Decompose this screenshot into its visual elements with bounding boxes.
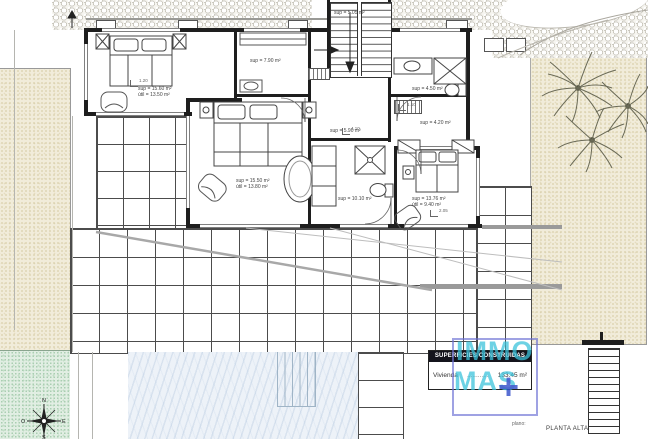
hall-arrow-icon: [314, 47, 338, 54]
dimension-label: 4.10: [351, 126, 360, 131]
armchair-master: [196, 171, 229, 204]
shower-bathroom-2: [434, 58, 466, 84]
logo-text-immo: IMMO: [456, 336, 534, 367]
dimension-label: 1.20: [139, 78, 148, 83]
dimension-tick: [342, 128, 350, 135]
room-label-dressing: sup = 7.90 m²: [250, 58, 281, 64]
useful-area-text: útil = 13.50 m²: [138, 92, 172, 98]
dimension-tick: [430, 210, 438, 217]
entry-arrow-icon: [68, 11, 76, 28]
dimension-tick: [130, 80, 138, 87]
toilet-master: [370, 184, 393, 198]
room-label-bathroom-2: sup = 4.50 m²: [412, 86, 443, 92]
room-label-master-bathroom: sup = 10.10 m²: [338, 196, 372, 202]
compass-east-label: E: [62, 419, 66, 425]
logo-plus-icon: +: [498, 366, 519, 408]
shower-master: [355, 146, 385, 174]
compass-icon: N E S O: [21, 398, 66, 439]
bathtub: [284, 156, 316, 202]
floor-plan-canvas: N E S O sup = 15.60 m² útil = 13.50 m² s…: [0, 0, 648, 439]
compass-north-label: N: [42, 398, 46, 404]
room-label-master-bedroom: sup = 15.50 m² útil = 13.80 m²: [236, 178, 270, 190]
compass-west-label: O: [21, 419, 26, 425]
bed-bedroom-2: [398, 140, 474, 192]
compass-south-label: S: [42, 435, 46, 439]
palm-tree-icon: [596, 74, 648, 138]
room-label-bedroom-2: sup = 13.76 m² útil = 9.40 m²: [412, 196, 446, 208]
useful-area-text: útil = 13.80 m²: [236, 184, 270, 190]
plan-linework: N E S O: [0, 0, 648, 439]
room-label-laundry: sup = 4.20 m²: [420, 120, 451, 126]
palm-tree-icon: [558, 108, 624, 172]
toilet-bathroom-2: [445, 84, 466, 96]
roof-projection-lines: [96, 228, 562, 290]
room-label-staircase: sup = 5.05 m²: [334, 10, 365, 16]
sink-bathroom-2: [394, 58, 432, 74]
armchair-bedroom-1: [101, 92, 127, 112]
room-label-bedroom-1: sup = 15.60 m² útil = 13.50 m²: [138, 86, 172, 98]
driveway-line: [520, 10, 648, 55]
palm-tree-icon: [542, 52, 616, 122]
plan-caption-prefix: plano:: [512, 421, 526, 427]
dimension-label: 1.10: [407, 102, 416, 107]
logo-immomas: IMMO MAS +: [452, 338, 538, 416]
dimension-tick: [398, 104, 406, 111]
dimension-label: 2.05: [439, 208, 448, 213]
bathroom-shelf: [312, 146, 336, 206]
stair-direction-arrow-icon: [346, 12, 354, 72]
plan-caption: PLANTA ALTA: [546, 426, 588, 432]
